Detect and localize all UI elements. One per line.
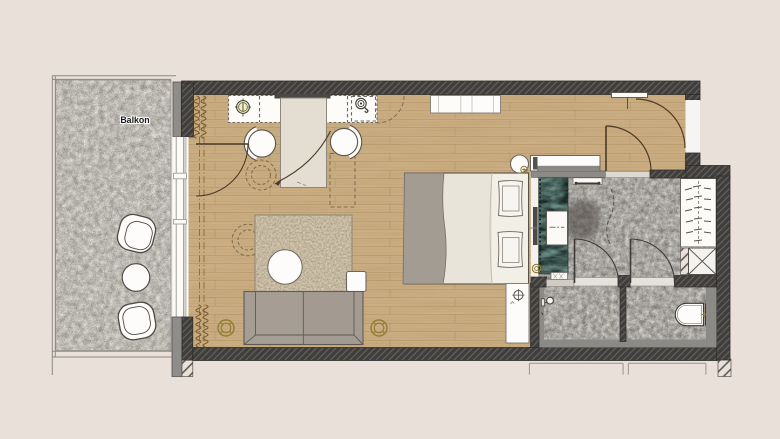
svg-text:Balkon: Balkon — [120, 115, 149, 125]
